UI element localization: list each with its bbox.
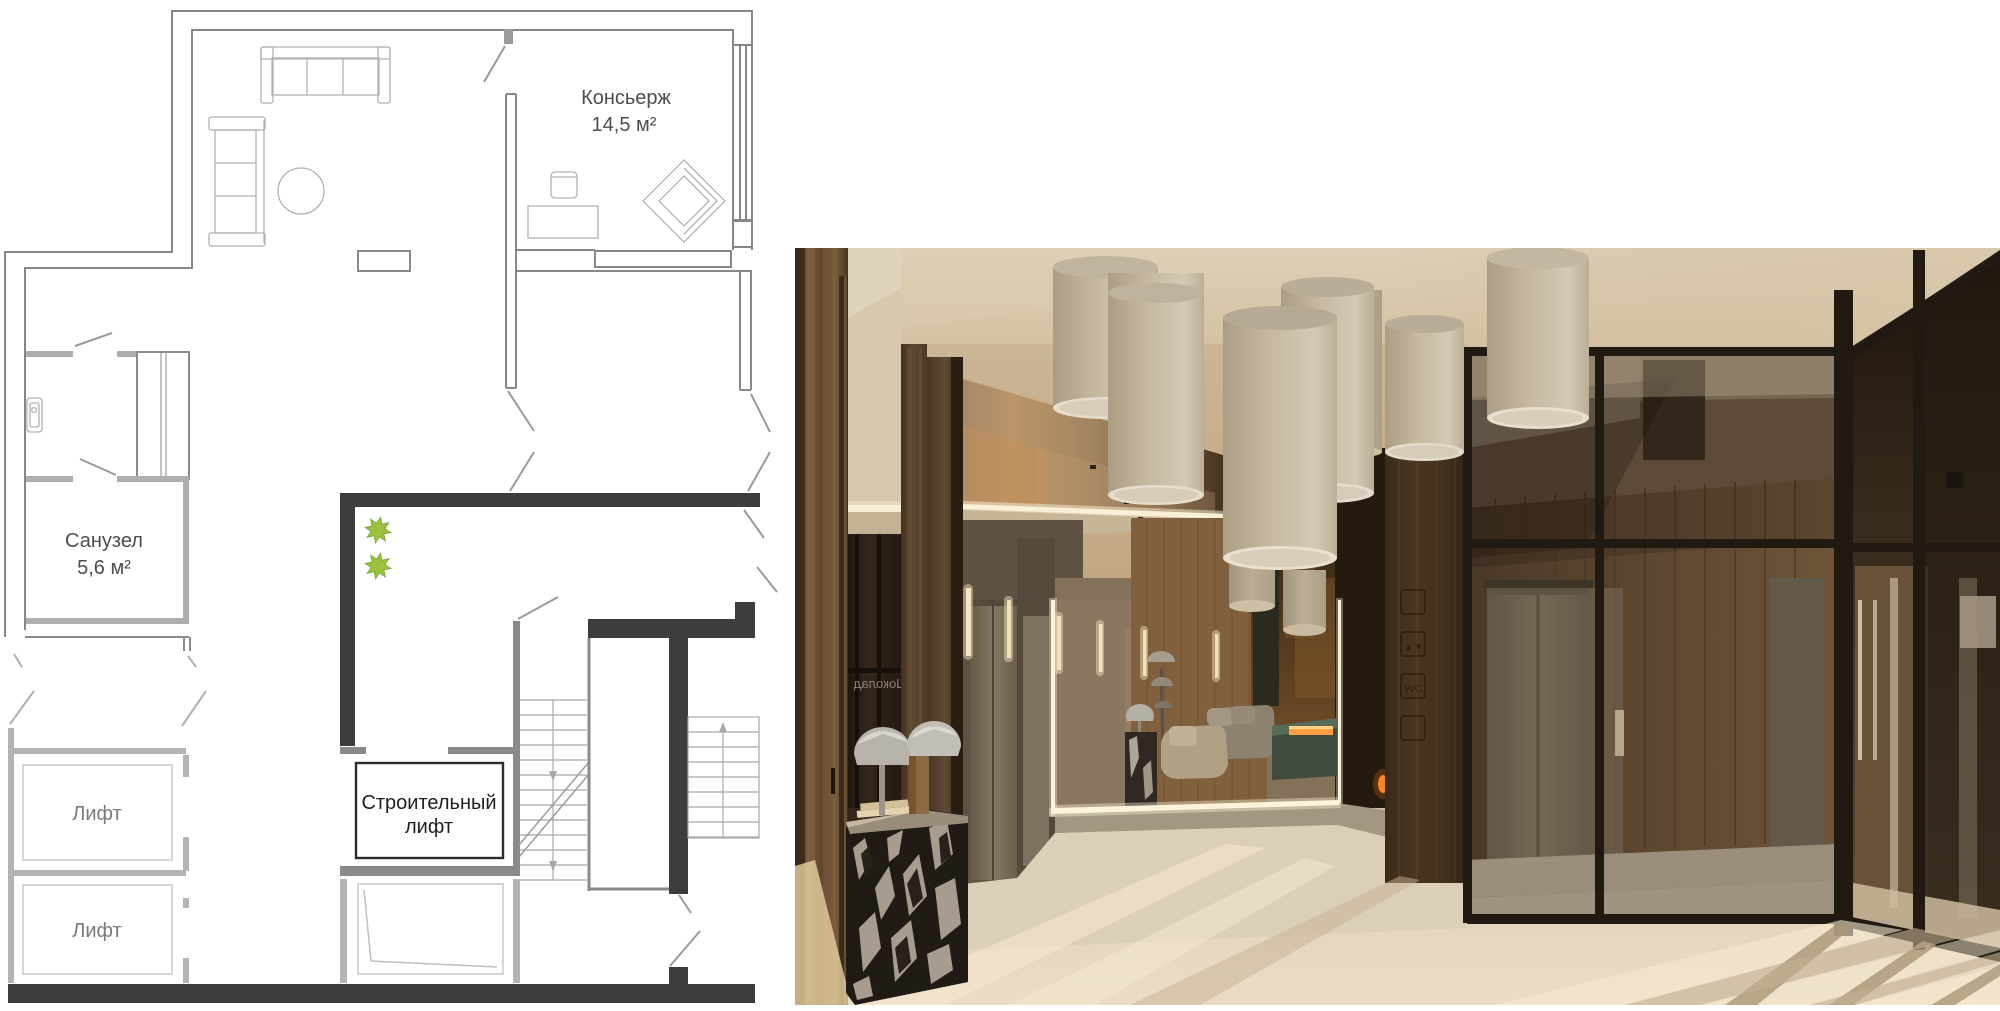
svg-text:Шоколад: Шоколад (853, 676, 908, 691)
svg-text:WC: WC (1404, 683, 1422, 695)
svg-text:5,6 м²: 5,6 м² (77, 557, 131, 579)
svg-text:‹: ‹ (1393, 640, 1396, 650)
svg-text:Санузел: Санузел (65, 530, 143, 552)
svg-text:Лифт: Лифт (72, 803, 121, 825)
svg-text:‹: ‹ (1393, 598, 1396, 608)
svg-text:лифт: лифт (405, 816, 453, 838)
svg-text:▲▼: ▲▼ (1404, 642, 1424, 653)
svg-text:‹: ‹ (1393, 682, 1396, 692)
svg-text:Лифт: Лифт (72, 920, 121, 942)
svg-text:Строительный: Строительный (361, 792, 496, 814)
svg-text:14,5 м²: 14,5 м² (592, 114, 657, 136)
svg-text:‹: ‹ (1393, 724, 1396, 734)
svg-text:Консьерж: Консьерж (581, 87, 671, 109)
